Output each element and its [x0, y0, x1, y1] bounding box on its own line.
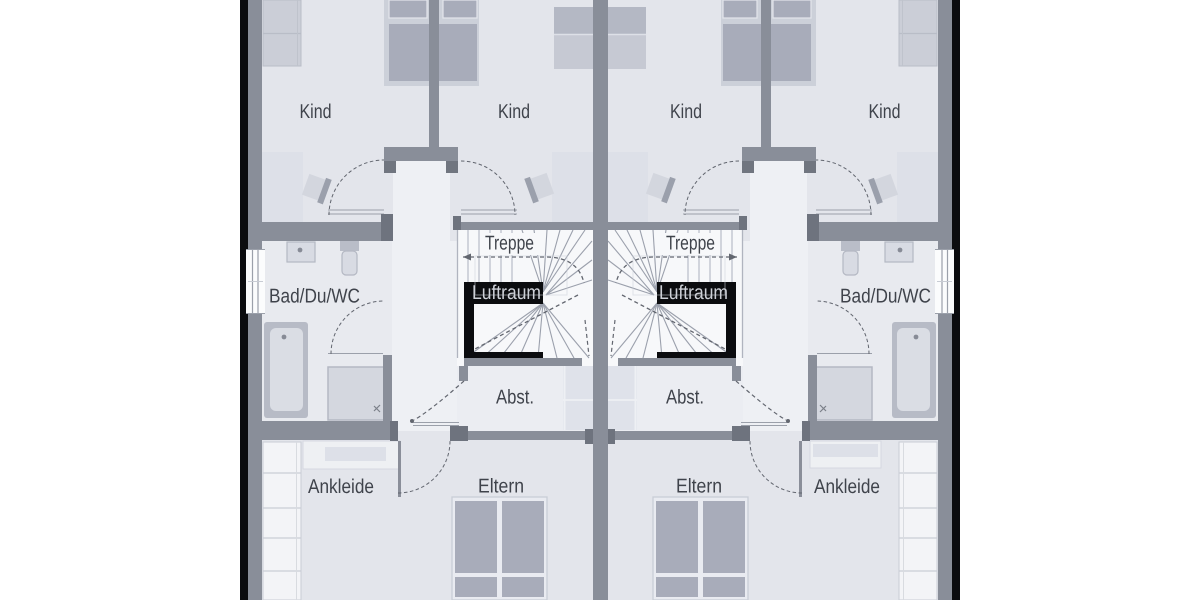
svg-text:Kind: Kind [869, 101, 901, 123]
svg-text:Bad/Du/WC: Bad/Du/WC [269, 286, 360, 308]
svg-text:Luftraum: Luftraum [659, 282, 728, 304]
svg-text:Ankleide: Ankleide [814, 476, 880, 498]
svg-text:Kind: Kind [300, 101, 332, 123]
svg-text:Treppe: Treppe [666, 233, 715, 255]
svg-text:Abst.: Abst. [496, 387, 534, 409]
svg-text:Kind: Kind [498, 101, 530, 123]
svg-text:Eltern: Eltern [478, 476, 524, 498]
svg-text:Treppe: Treppe [485, 233, 534, 255]
svg-text:Kind: Kind [670, 101, 702, 123]
svg-text:Ankleide: Ankleide [308, 476, 374, 498]
svg-text:Luftraum: Luftraum [472, 282, 541, 304]
svg-text:Bad/Du/WC: Bad/Du/WC [840, 286, 931, 308]
svg-text:Eltern: Eltern [676, 476, 722, 498]
svg-text:Abst.: Abst. [666, 387, 704, 409]
